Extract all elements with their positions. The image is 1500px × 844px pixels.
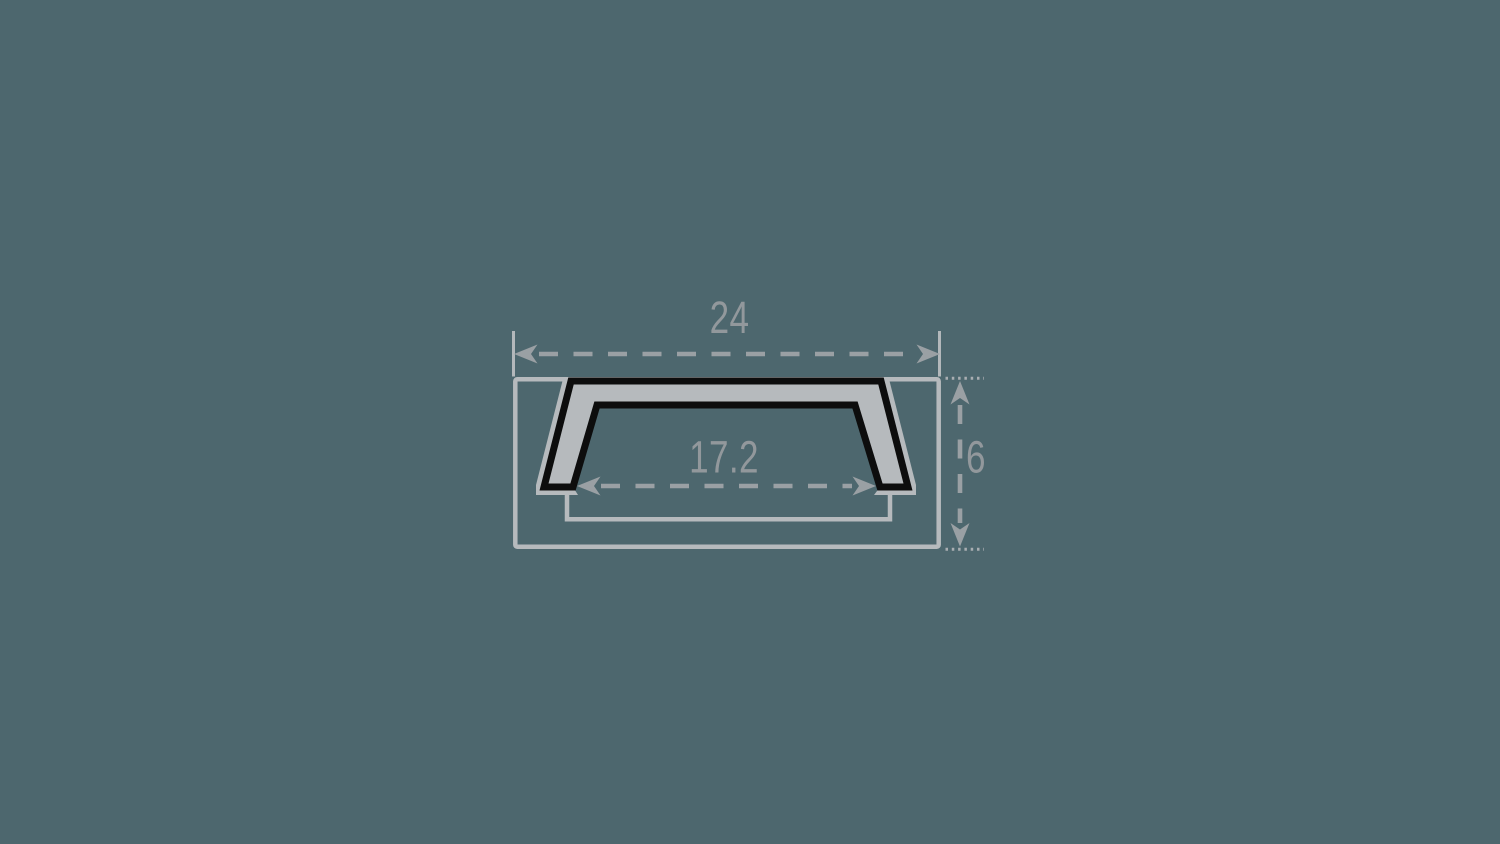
arrow-right-icon — [917, 345, 941, 364]
arrow-left-icon — [514, 345, 538, 364]
height-dimension: 6 — [946, 378, 986, 549]
screenshot-canvas: 24 17.2 6 — [0, 0, 1500, 844]
width-dimension: 24 — [514, 292, 941, 377]
arrow-left-icon — [577, 477, 601, 496]
height-label: 6 — [966, 431, 986, 482]
recess-step-outline — [567, 489, 890, 519]
arrow-down-icon — [951, 523, 970, 547]
outer-width-label: 24 — [710, 292, 750, 343]
profile-dimension-drawing: 24 17.2 6 — [0, 0, 1500, 844]
arrow-up-icon — [951, 381, 970, 405]
inner-width-dimension: 17.2 — [577, 431, 876, 495]
arrow-right-icon — [853, 477, 877, 496]
inner-width-label: 17.2 — [689, 431, 759, 482]
